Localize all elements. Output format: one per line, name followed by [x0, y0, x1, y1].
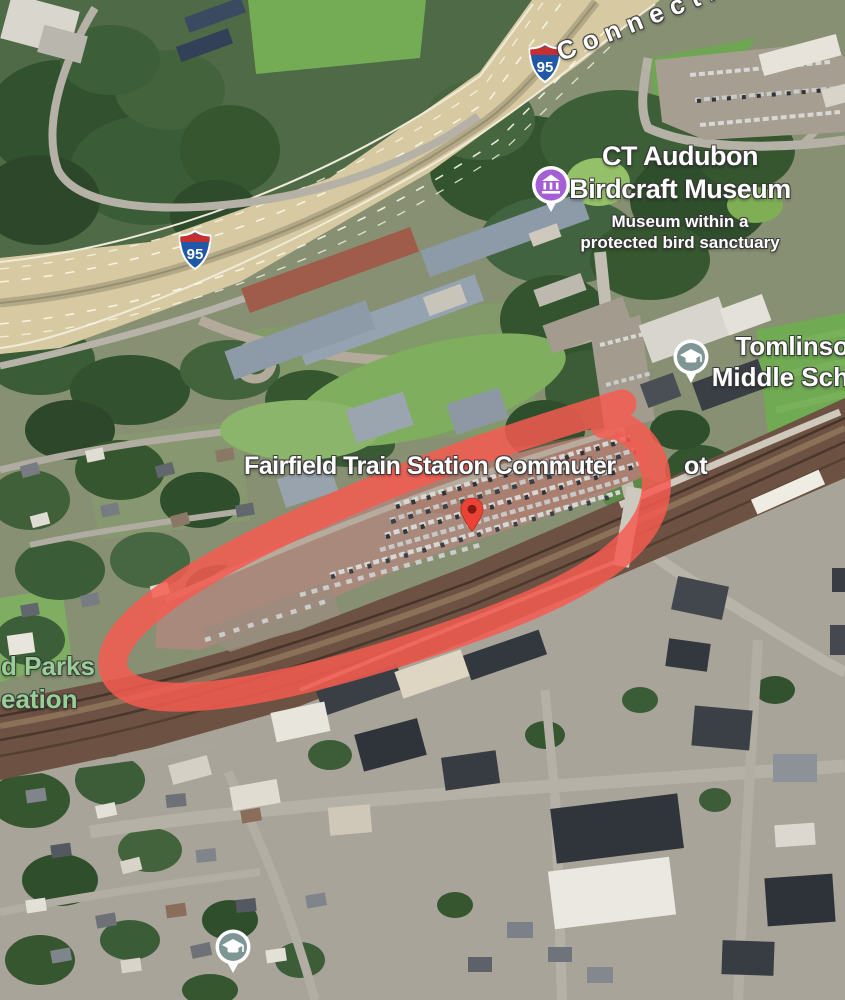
shield-number: 95 [187, 246, 204, 263]
museum-desc-line2: protected bird sanctuary [569, 232, 791, 253]
commuter-lot-label-tail[interactable]: ot [684, 452, 708, 481]
museum-poi-icon[interactable] [529, 161, 573, 217]
museum-desc-line1: Museum within a [569, 211, 791, 232]
museum-name-line1: CT Audubon [569, 140, 791, 173]
school-poi-label[interactable]: Tomlinso Middle Sch [712, 331, 845, 393]
satellite-map[interactable]: Connecticut 95 95 CT Audubon Birdcraft M… [0, 0, 845, 1000]
school-poi-icon[interactable] [671, 336, 711, 388]
map-pin[interactable] [459, 497, 485, 533]
school-poi-icon[interactable] [213, 926, 253, 978]
school-name-line1: Tomlinso [712, 331, 845, 362]
museum-name-line2: Birdcraft Museum [569, 173, 791, 206]
school-name-line2: Middle Sch [712, 362, 845, 393]
park-label-line1: d Parks [1, 650, 95, 683]
museum-poi-label[interactable]: CT Audubon Birdcraft Museum Museum withi… [569, 140, 791, 253]
interstate-95-shield: 95 [177, 230, 213, 270]
shield-number: 95 [537, 59, 554, 76]
park-label-line2: eation [1, 683, 95, 716]
commuter-lot-label[interactable]: Fairfield Train Station Commuter [244, 452, 616, 481]
park-poi-label[interactable]: d Parks eation [1, 650, 95, 716]
